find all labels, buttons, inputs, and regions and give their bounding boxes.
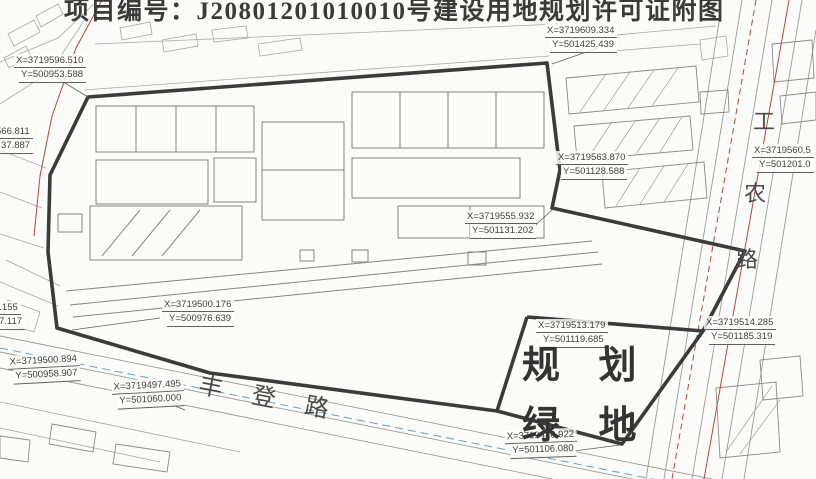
coordinate-label-right-lower: X=3719514.285 Y=501185.319: [704, 316, 776, 345]
building-outlines: [58, 92, 602, 317]
coordinate-label-center: X=3719555.932 Y=501131.202: [465, 210, 537, 239]
green-space-label: 规 划 绿 地: [522, 336, 651, 456]
coordinate-label-left-small: 5.155 7.117: [0, 301, 25, 330]
road-gongnong-lines: [646, 0, 816, 479]
coordinate-label-right-mid: X=3719563.870 Y=501128.588: [556, 151, 628, 180]
coordinate-y: Y=501425.439: [550, 38, 617, 52]
road-label-gongnong-char3: 路: [736, 242, 758, 274]
coordinate-label-top-right: X=3719609.334 Y=501425.439: [545, 24, 617, 53]
coordinate-y: Y=501131.202: [470, 224, 536, 238]
coordinate-y: Y=500953.588: [19, 68, 86, 82]
coordinate-x: 566.811: [0, 125, 33, 139]
road-label-gongnong-char1: 工: [753, 104, 775, 136]
coordinate-y: Y=501185.319: [709, 330, 775, 344]
coordinate-x: X=3719563.870: [556, 151, 628, 165]
coordinate-label-mid-left: X=3719500.176 Y=500976.639: [162, 298, 234, 327]
coordinate-label-top-left: X=3719596.510 Y=500953.588: [14, 54, 86, 83]
coordinate-label-bottom-left-a: X=3719500.894 Y=500958.907: [7, 352, 81, 384]
coordinate-x: X=3719514.285: [704, 316, 776, 330]
coordinate-y: Y=501128.588: [561, 165, 627, 179]
blue-utility-lines: [0, 348, 816, 479]
page-title: 项目编号：J20801201010010号建设用地规划许可证附图: [64, 0, 725, 27]
coordinate-label-left-edge: 566.811 37.887: [0, 125, 33, 154]
coordinate-x: X=3719596.510: [14, 54, 86, 68]
green-space-label-line1: 规 划: [522, 336, 651, 396]
coordinate-x: X=3719555.932: [465, 210, 537, 224]
coordinate-x: X=3719513.179: [536, 319, 608, 333]
planning-map-page: 项目编号：J20801201010010号建设用地规划许可证附图 X=37195…: [0, 0, 816, 479]
coordinate-label-bottom-left-b: X=3719497.495 Y=501060.000: [111, 377, 185, 409]
coordinate-x: X=3719560.5: [752, 144, 814, 158]
coordinate-y: 37.887: [0, 139, 33, 153]
coordinate-label-right-edge: X=3719560.5 Y=501201.0: [752, 144, 814, 173]
coordinate-y: 7.117: [0, 315, 25, 329]
green-space-label-line2: 绿 地: [522, 396, 651, 456]
coordinate-y: Y=500976.639: [167, 312, 234, 326]
road-label-gongnong-char2: 农: [744, 176, 766, 208]
coordinate-x: 5.155: [0, 301, 21, 315]
coordinate-y: Y=501201.0: [757, 158, 814, 172]
coordinate-x: X=3719500.176: [162, 298, 234, 312]
